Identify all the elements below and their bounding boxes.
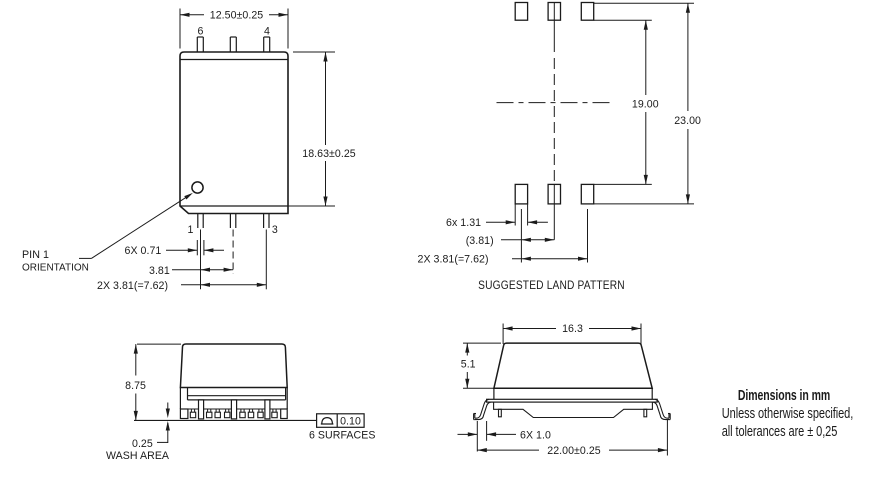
svg-text:12.50±0.25: 12.50±0.25 bbox=[210, 9, 264, 21]
svg-text:2X 3.81(=7.62): 2X 3.81(=7.62) bbox=[97, 280, 168, 292]
svg-text:(3.81): (3.81) bbox=[466, 235, 494, 247]
svg-text:6x 1.31: 6x 1.31 bbox=[446, 217, 481, 229]
svg-text:16.3: 16.3 bbox=[562, 323, 583, 335]
svg-text:0.25: 0.25 bbox=[132, 438, 153, 450]
svg-text:22.00±0.25: 22.00±0.25 bbox=[547, 445, 601, 457]
svg-text:23.00: 23.00 bbox=[674, 115, 701, 127]
svg-text:SUGGESTED LAND PATTERN: SUGGESTED LAND PATTERN bbox=[478, 279, 625, 292]
svg-text:Unless otherwise specified,: Unless otherwise specified, bbox=[722, 404, 853, 421]
svg-text:19.00: 19.00 bbox=[632, 98, 659, 110]
svg-text:4: 4 bbox=[264, 26, 270, 38]
svg-text:6 SURFACES: 6 SURFACES bbox=[309, 430, 375, 442]
svg-text:WASH AREA: WASH AREA bbox=[106, 450, 170, 462]
svg-text:1: 1 bbox=[188, 224, 194, 236]
svg-text:6X 1.0: 6X 1.0 bbox=[520, 429, 551, 441]
svg-text:ORIENTATION: ORIENTATION bbox=[22, 262, 89, 273]
svg-text:18.63±0.25: 18.63±0.25 bbox=[302, 148, 356, 160]
svg-text:0.10: 0.10 bbox=[340, 416, 361, 428]
svg-text:3.81: 3.81 bbox=[149, 265, 170, 277]
svg-text:2X 3.81(=7.62): 2X 3.81(=7.62) bbox=[418, 254, 489, 266]
svg-text:Dimensions in mm: Dimensions in mm bbox=[738, 386, 830, 403]
svg-text:6X 0.71: 6X 0.71 bbox=[125, 245, 162, 257]
svg-text:5.1: 5.1 bbox=[461, 359, 476, 371]
svg-text:all tolerances are ± 0,25: all tolerances are ± 0,25 bbox=[722, 422, 838, 439]
svg-text:3: 3 bbox=[272, 224, 278, 236]
svg-text:8.75: 8.75 bbox=[125, 380, 146, 392]
svg-text:PIN 1: PIN 1 bbox=[22, 249, 49, 261]
svg-text:6: 6 bbox=[198, 26, 204, 38]
